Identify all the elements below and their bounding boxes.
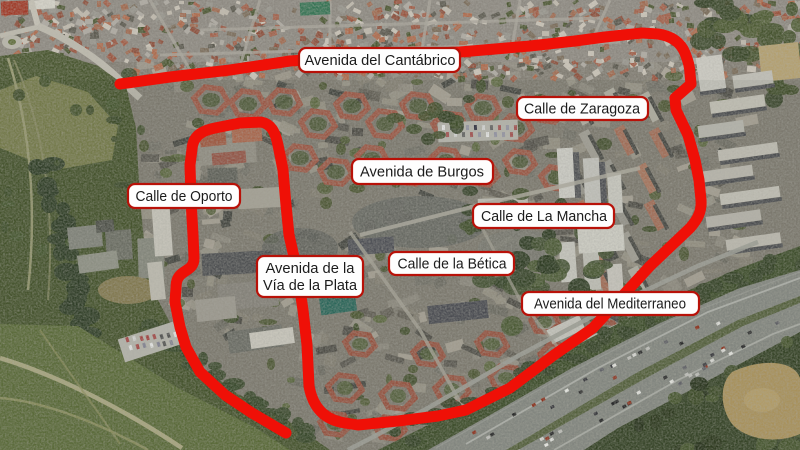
svg-text:Calle de Oporto: Calle de Oporto (136, 188, 233, 205)
svg-text:Calle de Zaragoza: Calle de Zaragoza (524, 101, 641, 118)
svg-text:Avenida del Mediterraneo: Avenida del Mediterraneo (534, 296, 686, 313)
svg-text:Avenida de Burgos: Avenida de Burgos (360, 164, 484, 181)
svg-text:Vía de la Plata: Vía de la Plata (263, 277, 358, 294)
svg-text:Avenida de la: Avenida de la (266, 260, 356, 277)
svg-text:Avenida del Cantábrico: Avenida del Cantábrico (305, 52, 456, 69)
svg-text:Calle de la Bética: Calle de la Bética (398, 256, 508, 273)
svg-text:Calle de La Mancha: Calle de La Mancha (481, 208, 608, 225)
